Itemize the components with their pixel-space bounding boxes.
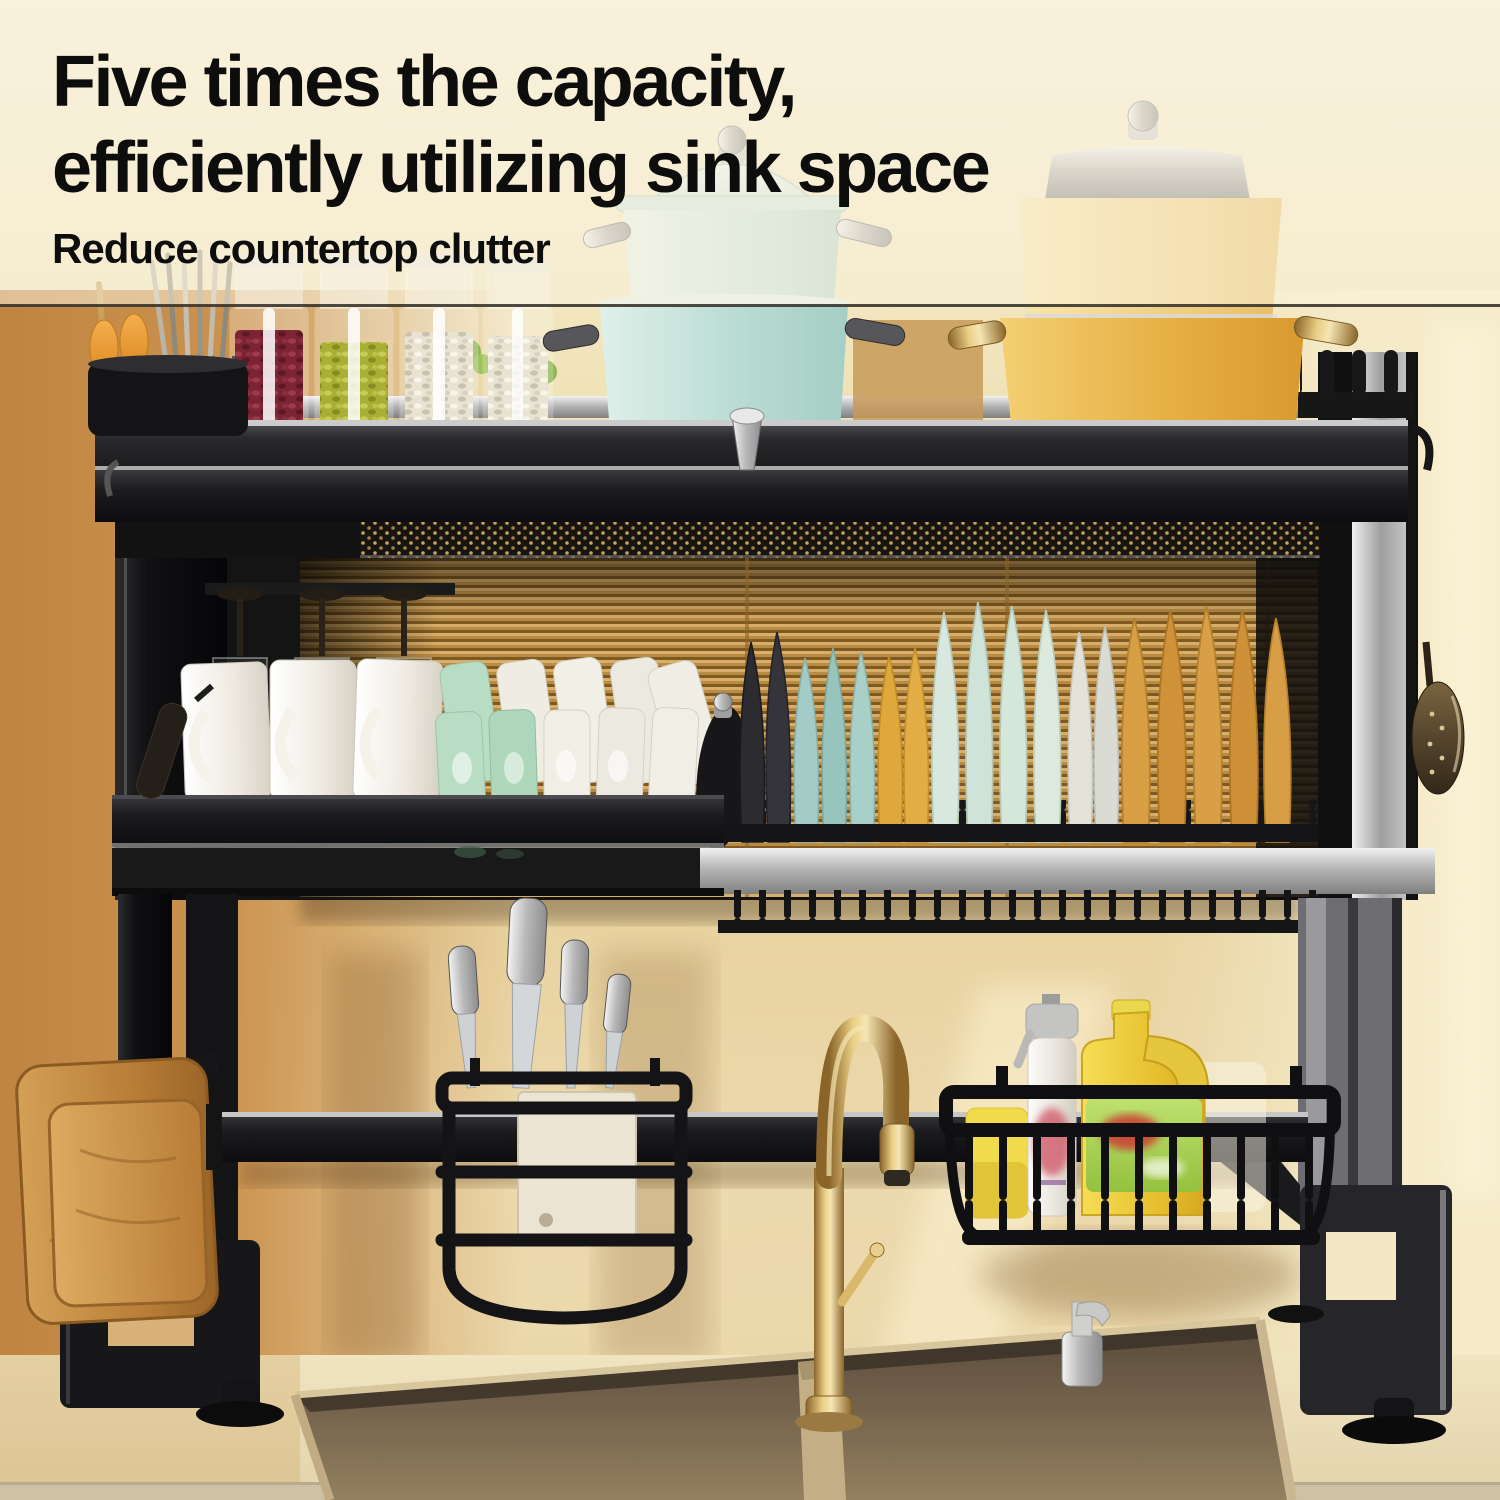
cups-front-row xyxy=(435,707,699,809)
right-suction-foot xyxy=(1342,1416,1446,1444)
subheadline: Reduce countertop clutter xyxy=(52,225,988,273)
mug-shelf-front xyxy=(112,795,724,847)
wooden-cutting-boards xyxy=(15,1052,220,1325)
teal-pot-body xyxy=(600,305,848,432)
yellow-pot-body xyxy=(1000,318,1305,433)
drip-tray-silver-bar xyxy=(700,848,1435,894)
seam-line xyxy=(0,304,1500,307)
lower-prong-rail xyxy=(718,890,1318,924)
left-suction-foot xyxy=(196,1401,284,1427)
product-marketing-image: Five times the capacity, efficiently uti… xyxy=(0,0,1500,1500)
marketing-copy: Five times the capacity, efficiently uti… xyxy=(52,39,988,273)
stacked-cups xyxy=(435,656,727,809)
faucet-sprayer-head xyxy=(880,1124,914,1176)
right-leg-cutout xyxy=(1326,1232,1396,1300)
plate-rail-front xyxy=(718,824,1318,842)
headline-line-1: Five times the capacity, xyxy=(52,39,988,125)
headline-line-2: efficiently utilizing sink space xyxy=(52,125,988,211)
basket-frame xyxy=(946,1066,1334,1245)
white-mugs xyxy=(181,659,444,802)
utensil-cup xyxy=(88,362,248,436)
right-rear-foot xyxy=(1268,1305,1324,1323)
cutting-board-small xyxy=(49,1099,208,1306)
right-hook-comb xyxy=(1298,350,1414,418)
top-shelf xyxy=(95,408,1408,558)
